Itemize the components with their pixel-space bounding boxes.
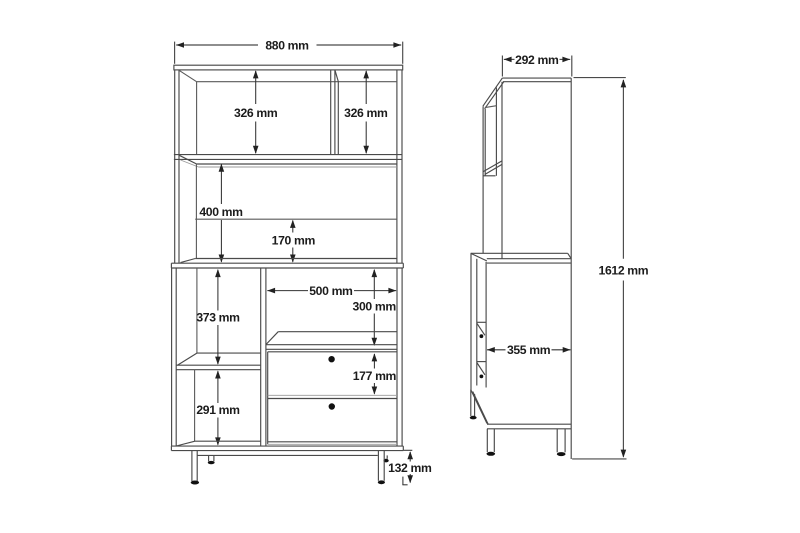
svg-text:373 mm: 373 mm: [196, 311, 240, 325]
svg-text:880 mm: 880 mm: [265, 38, 309, 52]
svg-text:132 mm: 132 mm: [388, 461, 432, 475]
svg-text:170 mm: 170 mm: [272, 233, 316, 247]
svg-text:500 mm: 500 mm: [309, 284, 353, 298]
svg-text:326 mm: 326 mm: [344, 106, 388, 120]
svg-text:292 mm: 292 mm: [515, 53, 559, 67]
svg-text:1612 mm: 1612 mm: [599, 263, 649, 277]
svg-text:291 mm: 291 mm: [196, 403, 240, 417]
svg-text:177 mm: 177 mm: [353, 369, 397, 383]
svg-text:326 mm: 326 mm: [234, 106, 278, 120]
svg-text:300 mm: 300 mm: [353, 300, 397, 314]
svg-text:400 mm: 400 mm: [199, 205, 243, 219]
svg-text:355 mm: 355 mm: [507, 343, 551, 357]
